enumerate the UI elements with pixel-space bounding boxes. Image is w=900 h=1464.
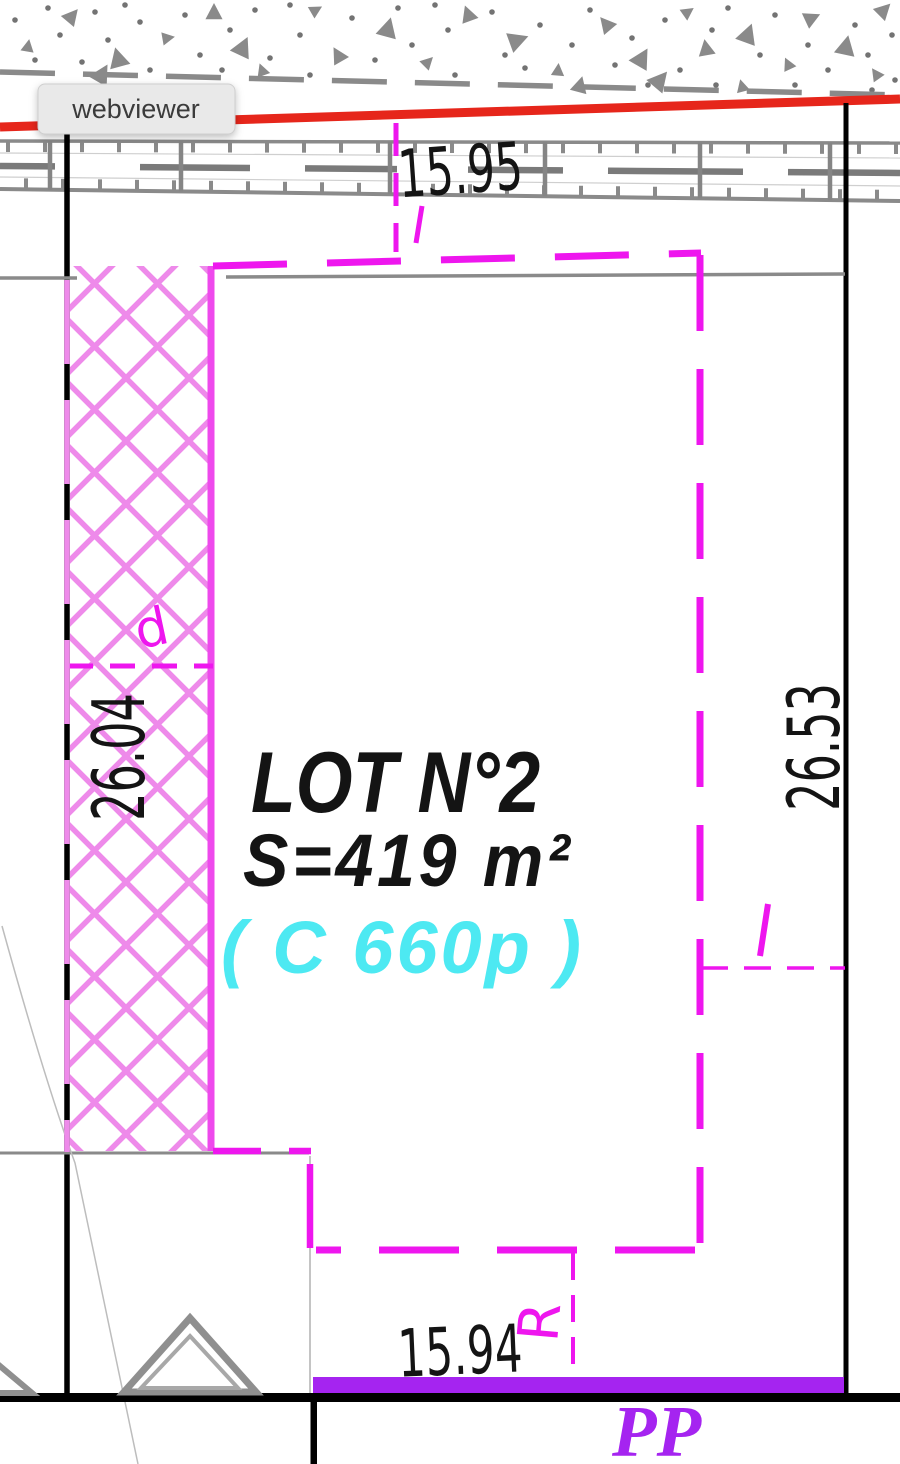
stipple-dot [772, 12, 778, 18]
stipple-dot [677, 67, 683, 73]
dimension-tick-right [760, 904, 768, 956]
stipple-dot [865, 52, 871, 58]
stipple-dot [452, 72, 458, 78]
stipple-dot [92, 9, 98, 15]
stipple-dot [297, 32, 303, 38]
lot-boundary-top [213, 253, 701, 266]
stipple-dot [709, 27, 715, 33]
stipple-dot [569, 42, 575, 48]
stipple-triangle [834, 33, 859, 57]
stipple-dot [182, 12, 188, 18]
stipple-triangle [629, 43, 657, 71]
stipple-dot [852, 22, 858, 28]
gray-line-top [226, 274, 845, 277]
stipple-dot [45, 5, 51, 11]
stipple-dot [825, 67, 831, 73]
stipple-dot [349, 15, 355, 21]
stipple-dot [252, 7, 258, 13]
stipple-dot [105, 37, 111, 43]
stipple-triangle [205, 3, 222, 19]
dimension-left: 26.04 [78, 693, 162, 821]
stipple-triangle [735, 20, 761, 46]
stipple-dot [725, 5, 731, 11]
stipple-dot [489, 9, 495, 15]
mark-r: R [506, 1300, 574, 1344]
pp-label: PP [611, 1391, 703, 1464]
stipple-texture [12, 0, 898, 94]
stipple-dot [629, 35, 635, 41]
bottom-vertical-line [311, 1398, 318, 1464]
stipple-dot [307, 72, 313, 78]
stipple-dot [445, 27, 451, 33]
stipple-triangle [326, 43, 349, 66]
lot-area: S=419 m² [243, 820, 573, 902]
stipple-triangle [253, 61, 270, 77]
roof-triangle [124, 1318, 256, 1392]
lot-title: LOT N°2 [251, 734, 540, 830]
stipple-dot [197, 52, 203, 58]
stipple-dot [137, 19, 143, 25]
stipple-triangle [308, 1, 326, 19]
stipple-triangle [376, 15, 401, 40]
brick-course-dash [608, 171, 743, 172]
plan-canvas: 15.95 26.04 26.53 15.94 LOT N°2 S=419 m²… [0, 0, 900, 1464]
webviewer-badge-label: webviewer [71, 94, 200, 124]
stipple-dot [537, 22, 543, 28]
stipple-triangle [696, 38, 716, 57]
stipple-dot [757, 52, 763, 58]
stipple-dot [79, 59, 85, 65]
stipple-dot [12, 17, 18, 23]
stipple-dot [805, 42, 811, 48]
stipple-dot [219, 67, 225, 73]
dimension-bottom: 15.94 [396, 1311, 524, 1393]
stipple-dot [57, 32, 63, 38]
lot-capacity: ( C 660p ) [221, 906, 584, 989]
dimension-top: 15.95 [396, 129, 526, 214]
stipple-dot [645, 82, 651, 88]
stipple-triangle [594, 12, 618, 35]
stipple-dot [792, 82, 798, 88]
stipple-triangle [570, 74, 591, 94]
stipple-dot [713, 82, 719, 88]
stipple-dot [892, 77, 898, 83]
roof-triangle-partial [0, 1356, 32, 1393]
stipple-dot [372, 57, 378, 63]
stipple-triangle [105, 45, 130, 70]
stipple-dot [395, 5, 401, 11]
stipple-triangle [419, 52, 437, 70]
stipple-dot [287, 2, 293, 8]
stipple-dot [147, 67, 153, 73]
stipple-triangle [230, 33, 257, 60]
stipple-triangle [20, 38, 35, 53]
stipple-triangle [867, 64, 885, 82]
stipple-triangle [680, 3, 698, 21]
dimension-right: 26.53 [773, 683, 857, 811]
webviewer-badge[interactable]: webviewer [38, 84, 235, 134]
stipple-triangle [779, 55, 796, 72]
stipple-dot [662, 17, 668, 23]
stipple-dot [502, 52, 508, 58]
stipple-triangle [457, 3, 479, 24]
stipple-dot [889, 32, 895, 38]
stipple-dot [122, 2, 128, 8]
stipple-triangle [161, 30, 176, 45]
stipple-triangle [873, 0, 897, 21]
stipple-triangle [551, 62, 565, 76]
brick-course-dash [140, 167, 250, 168]
stipple-dot [32, 57, 38, 63]
stipple-dot [267, 55, 273, 61]
stipple-dot [587, 7, 593, 13]
stipple-triangle [802, 6, 824, 28]
stipple-dot [227, 27, 233, 33]
stipple-dot [432, 2, 438, 8]
stipple-dot [612, 62, 618, 68]
stipple-triangle [506, 26, 532, 52]
stipple-triangle [61, 4, 85, 27]
roof-outline [124, 1318, 256, 1392]
stipple-dot [522, 65, 528, 71]
plan-viewer: 15.95 26.04 26.53 15.94 LOT N°2 S=419 m²… [0, 0, 900, 1464]
stipple-dot [409, 42, 415, 48]
brick-course-dash [305, 168, 397, 169]
